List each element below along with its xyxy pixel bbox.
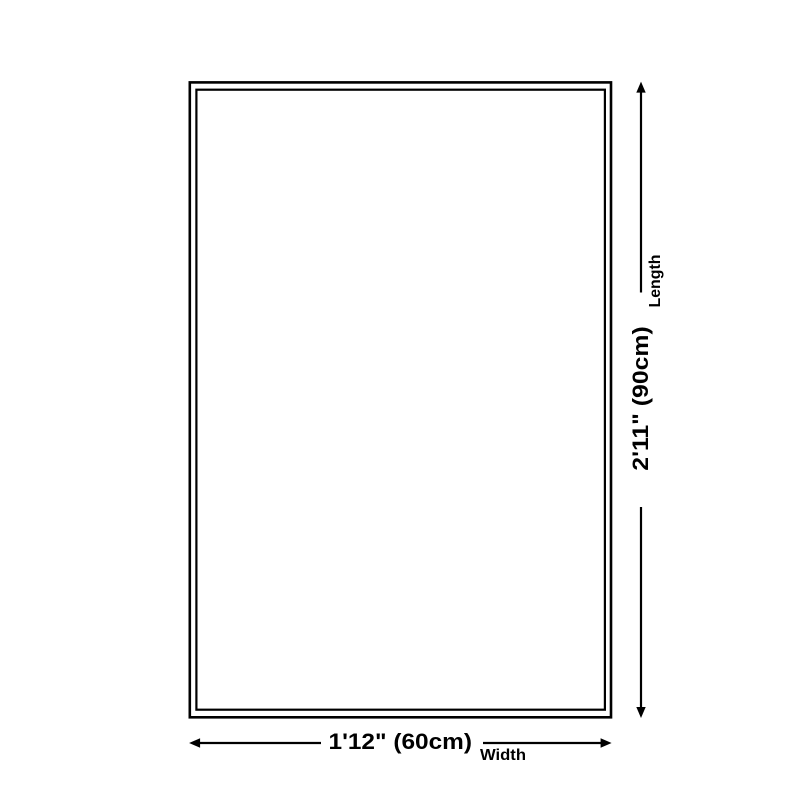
svg-text:Width: Width xyxy=(480,747,526,764)
svg-text:Length: Length xyxy=(647,255,664,308)
svg-text:1'12" (60cm): 1'12" (60cm) xyxy=(329,729,473,754)
svg-text:2'11" (90cm): 2'11" (90cm) xyxy=(628,326,653,470)
